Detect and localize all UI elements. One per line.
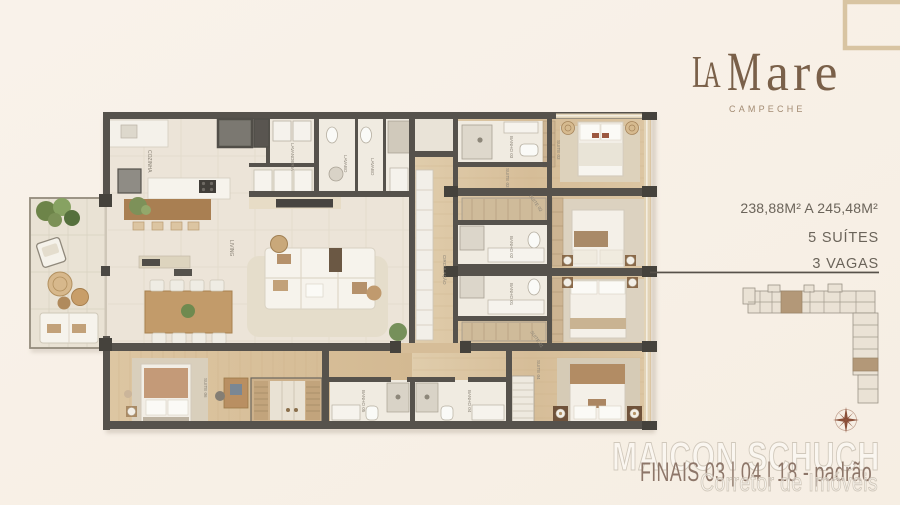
svg-text:SUITE 04: SUITE 04	[536, 360, 541, 380]
svg-text:BANHO 03: BANHO 03	[509, 136, 514, 159]
svg-text:A: A	[703, 54, 721, 95]
svg-text:CIRCULAÇÃO: CIRCULAÇÃO	[442, 255, 448, 285]
svg-text:LAVABO: LAVABO	[343, 155, 348, 173]
svg-text:5 SUÍTES: 5 SUÍTES	[808, 229, 879, 246]
svg-text:M: M	[727, 42, 761, 102]
svg-text:BANHO 04: BANHO 04	[467, 390, 472, 413]
svg-text:SUITE 03: SUITE 03	[505, 168, 510, 188]
svg-text:LAVABO: LAVABO	[370, 158, 375, 176]
svg-text:COZINHA: COZINHA	[146, 150, 152, 173]
svg-text:CAMPECHE: CAMPECHE	[729, 104, 806, 114]
svg-text:LAVANDERIA: LAVANDERIA	[290, 143, 295, 171]
svg-text:BANHO 05: BANHO 05	[361, 390, 366, 413]
svg-text:are: are	[766, 43, 842, 102]
svg-text:3 VAGAS: 3 VAGAS	[812, 256, 879, 272]
svg-text:238,88M² A 245,48M²: 238,88M² A 245,48M²	[740, 200, 878, 216]
svg-text:Corretor de Imóveis: Corretor de Imóveis	[700, 469, 878, 497]
svg-text:SUITE 03: SUITE 03	[556, 140, 561, 160]
svg-text:BANHO 02: BANHO 02	[509, 236, 514, 259]
svg-text:LIVING: LIVING	[228, 240, 234, 257]
svg-text:SUITE 06: SUITE 06	[203, 378, 208, 398]
svg-text:BANHO 01: BANHO 01	[509, 283, 514, 306]
